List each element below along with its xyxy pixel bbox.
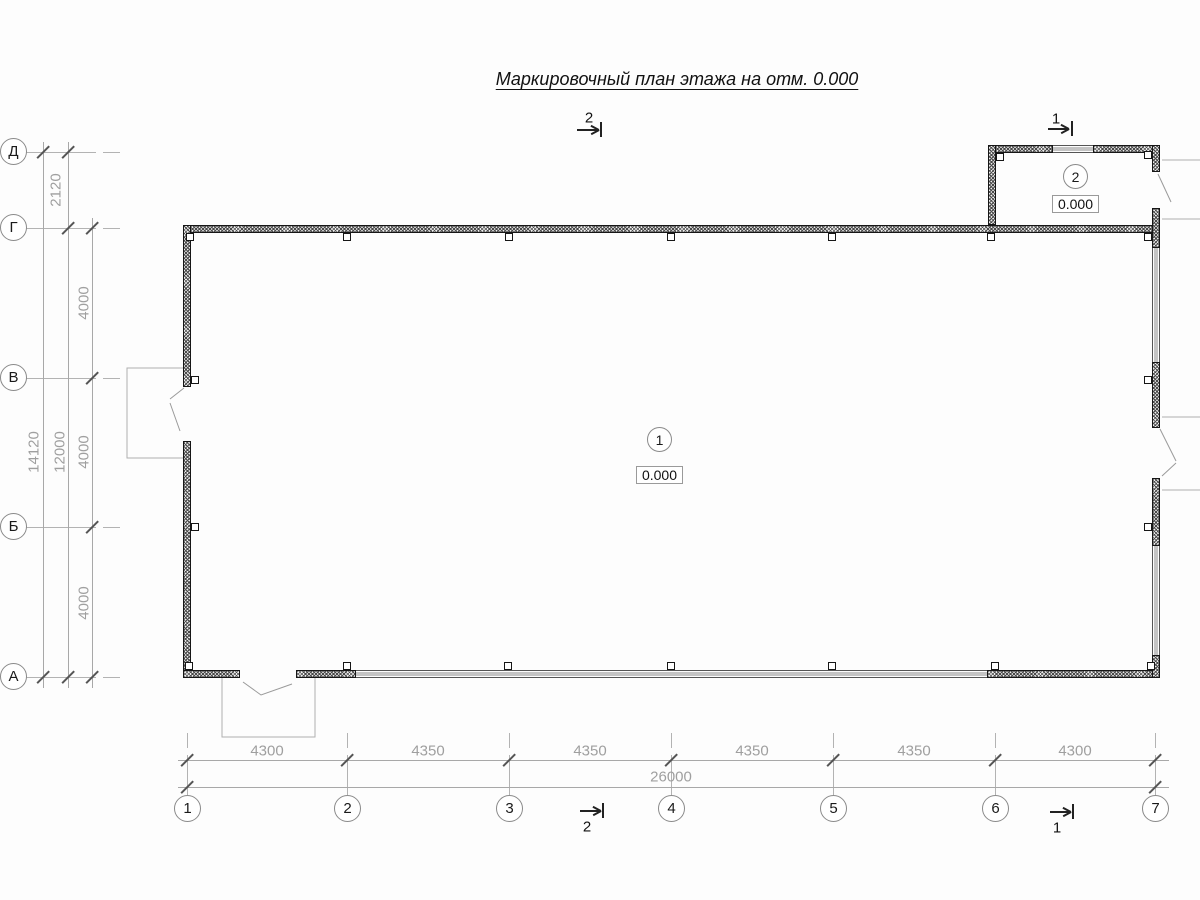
column-marker (1144, 523, 1152, 531)
section-label-2-top: 2 (585, 110, 593, 127)
col-axis-bubble-7: 7 (1142, 795, 1169, 822)
column-marker (343, 233, 351, 241)
window-strip-bottom (356, 670, 987, 678)
dim-label-bottom-overall: 26000 (650, 769, 692, 786)
column-marker (667, 233, 675, 241)
window-strip-right-lower (1152, 546, 1160, 655)
section-arrow-icon (602, 803, 604, 818)
axis-line-col-6 (995, 733, 996, 795)
column-marker (186, 233, 194, 241)
wall-room2-left (988, 145, 996, 225)
row-axis-bubble-v: В (0, 364, 27, 391)
window-strip-right-upper (1152, 248, 1160, 362)
dim-label-bottom-seg5: 4350 (897, 743, 930, 760)
col-axis-bubble-5: 5 (820, 795, 847, 822)
row-axis-label: Б (9, 518, 19, 535)
section-label-1-bottom: 1 (1053, 820, 1061, 837)
section-arrow-icon (1072, 804, 1074, 819)
room-number: 1 (656, 432, 664, 448)
column-marker (191, 523, 199, 531)
dim-label-bottom-seg1: 4300 (250, 743, 283, 760)
room-number-bubble-2: 2 (1063, 164, 1088, 189)
dim-label-left-overall: 14120 (26, 431, 43, 473)
column-marker (987, 233, 995, 241)
door-swing-room2 (1158, 174, 1171, 202)
col-axis-label: 5 (829, 800, 837, 817)
col-axis-bubble-4: 4 (658, 795, 685, 822)
wall-left-lower (183, 441, 191, 678)
col-axis-label: 2 (343, 800, 351, 817)
column-marker (991, 662, 999, 670)
wall-left-upper (183, 225, 191, 387)
col-axis-bubble-1: 1 (174, 795, 201, 822)
room-number: 2 (1072, 169, 1080, 185)
axis-line-col-3 (509, 733, 510, 795)
wall-bottom-seg2 (296, 670, 356, 678)
porch-outline-bottom (222, 678, 315, 737)
section-arrow-icon (1071, 121, 1073, 136)
col-axis-bubble-6: 6 (982, 795, 1009, 822)
elevation-box-room1: 0.000 (636, 466, 683, 484)
column-marker (1144, 233, 1152, 241)
elevation-value: 0.000 (642, 467, 677, 483)
door-swing-left (170, 388, 184, 431)
column-marker (191, 376, 199, 384)
wall-top-main (183, 225, 1160, 233)
dim-label-left-seg1: 4000 (76, 286, 93, 319)
wall-right-seg2 (1152, 362, 1160, 428)
section-label-1-top: 1 (1052, 111, 1060, 128)
dim-label-left-upper: 2120 (48, 173, 65, 206)
dim-line-bottom-overall (178, 787, 1169, 788)
col-axis-bubble-3: 3 (496, 795, 523, 822)
col-axis-label: 6 (991, 800, 999, 817)
dim-label-bottom-seg2: 4350 (411, 743, 444, 760)
dim-line-left-overall (43, 142, 44, 688)
col-axis-label: 1 (183, 800, 191, 817)
elevation-box-room2: 0.000 (1052, 195, 1099, 213)
column-marker (505, 233, 513, 241)
col-axis-bubble-2: 2 (334, 795, 361, 822)
door-swing-right (1160, 429, 1176, 476)
column-marker (828, 662, 836, 670)
window-strip-room2 (1053, 145, 1093, 153)
wall-right-seg3 (1152, 478, 1160, 546)
row-axis-bubble-d: Д (0, 138, 27, 165)
floor-plan-drawing: Маркировочный план этажа на отм. 0.000 (0, 0, 1200, 900)
elevation-value: 0.000 (1058, 196, 1093, 212)
wall-right-seg1 (1152, 208, 1160, 248)
axis-line-row-v (26, 378, 120, 379)
column-marker (504, 662, 512, 670)
axis-line-col-5 (833, 733, 834, 795)
column-marker (828, 233, 836, 241)
dim-label-left-main: 12000 (52, 431, 69, 473)
dim-label-left-seg3: 4000 (76, 586, 93, 619)
wall-bottom-seg1 (183, 670, 240, 678)
dim-label-left-seg2: 4000 (76, 435, 93, 468)
row-axis-label: Д (8, 143, 18, 160)
wall-bottom-seg3 (987, 670, 1160, 678)
col-axis-label: 4 (667, 800, 675, 817)
row-axis-label: А (8, 668, 18, 685)
landing-lines-right (1162, 417, 1200, 490)
column-marker (1147, 662, 1155, 670)
room-number-bubble-1: 1 (647, 427, 672, 452)
section-arrow-icon (600, 122, 602, 137)
section-label-2-bottom: 2 (583, 819, 591, 836)
dim-label-bottom-seg6: 4300 (1058, 743, 1091, 760)
dim-label-bottom-seg4: 4350 (735, 743, 768, 760)
column-marker (996, 153, 1004, 161)
row-axis-label: Г (9, 219, 17, 236)
dim-label-bottom-seg3: 4350 (573, 743, 606, 760)
door-swing-bottom (243, 682, 292, 695)
row-axis-bubble-b: Б (0, 513, 27, 540)
dim-line-left-main (68, 142, 69, 688)
porch-outline-left (127, 368, 183, 458)
row-axis-label: В (8, 369, 18, 386)
col-axis-label: 7 (1151, 800, 1159, 817)
landing-lines-room2 (1162, 160, 1200, 219)
column-marker (667, 662, 675, 670)
wall-room2-right (1152, 145, 1160, 172)
col-axis-label: 3 (505, 800, 513, 817)
row-axis-bubble-a: А (0, 663, 27, 690)
dim-line-bottom-segments (178, 760, 1169, 761)
column-marker (185, 662, 193, 670)
wall-room2-top-seg1 (988, 145, 1053, 153)
column-marker (1144, 151, 1152, 159)
row-axis-bubble-g: Г (0, 214, 27, 241)
axis-line-row-g (26, 228, 120, 229)
column-marker (1144, 376, 1152, 384)
axis-line-col-4 (671, 733, 672, 795)
column-marker (343, 662, 351, 670)
axis-line-col-2 (347, 733, 348, 795)
axis-line-row-b (26, 527, 120, 528)
